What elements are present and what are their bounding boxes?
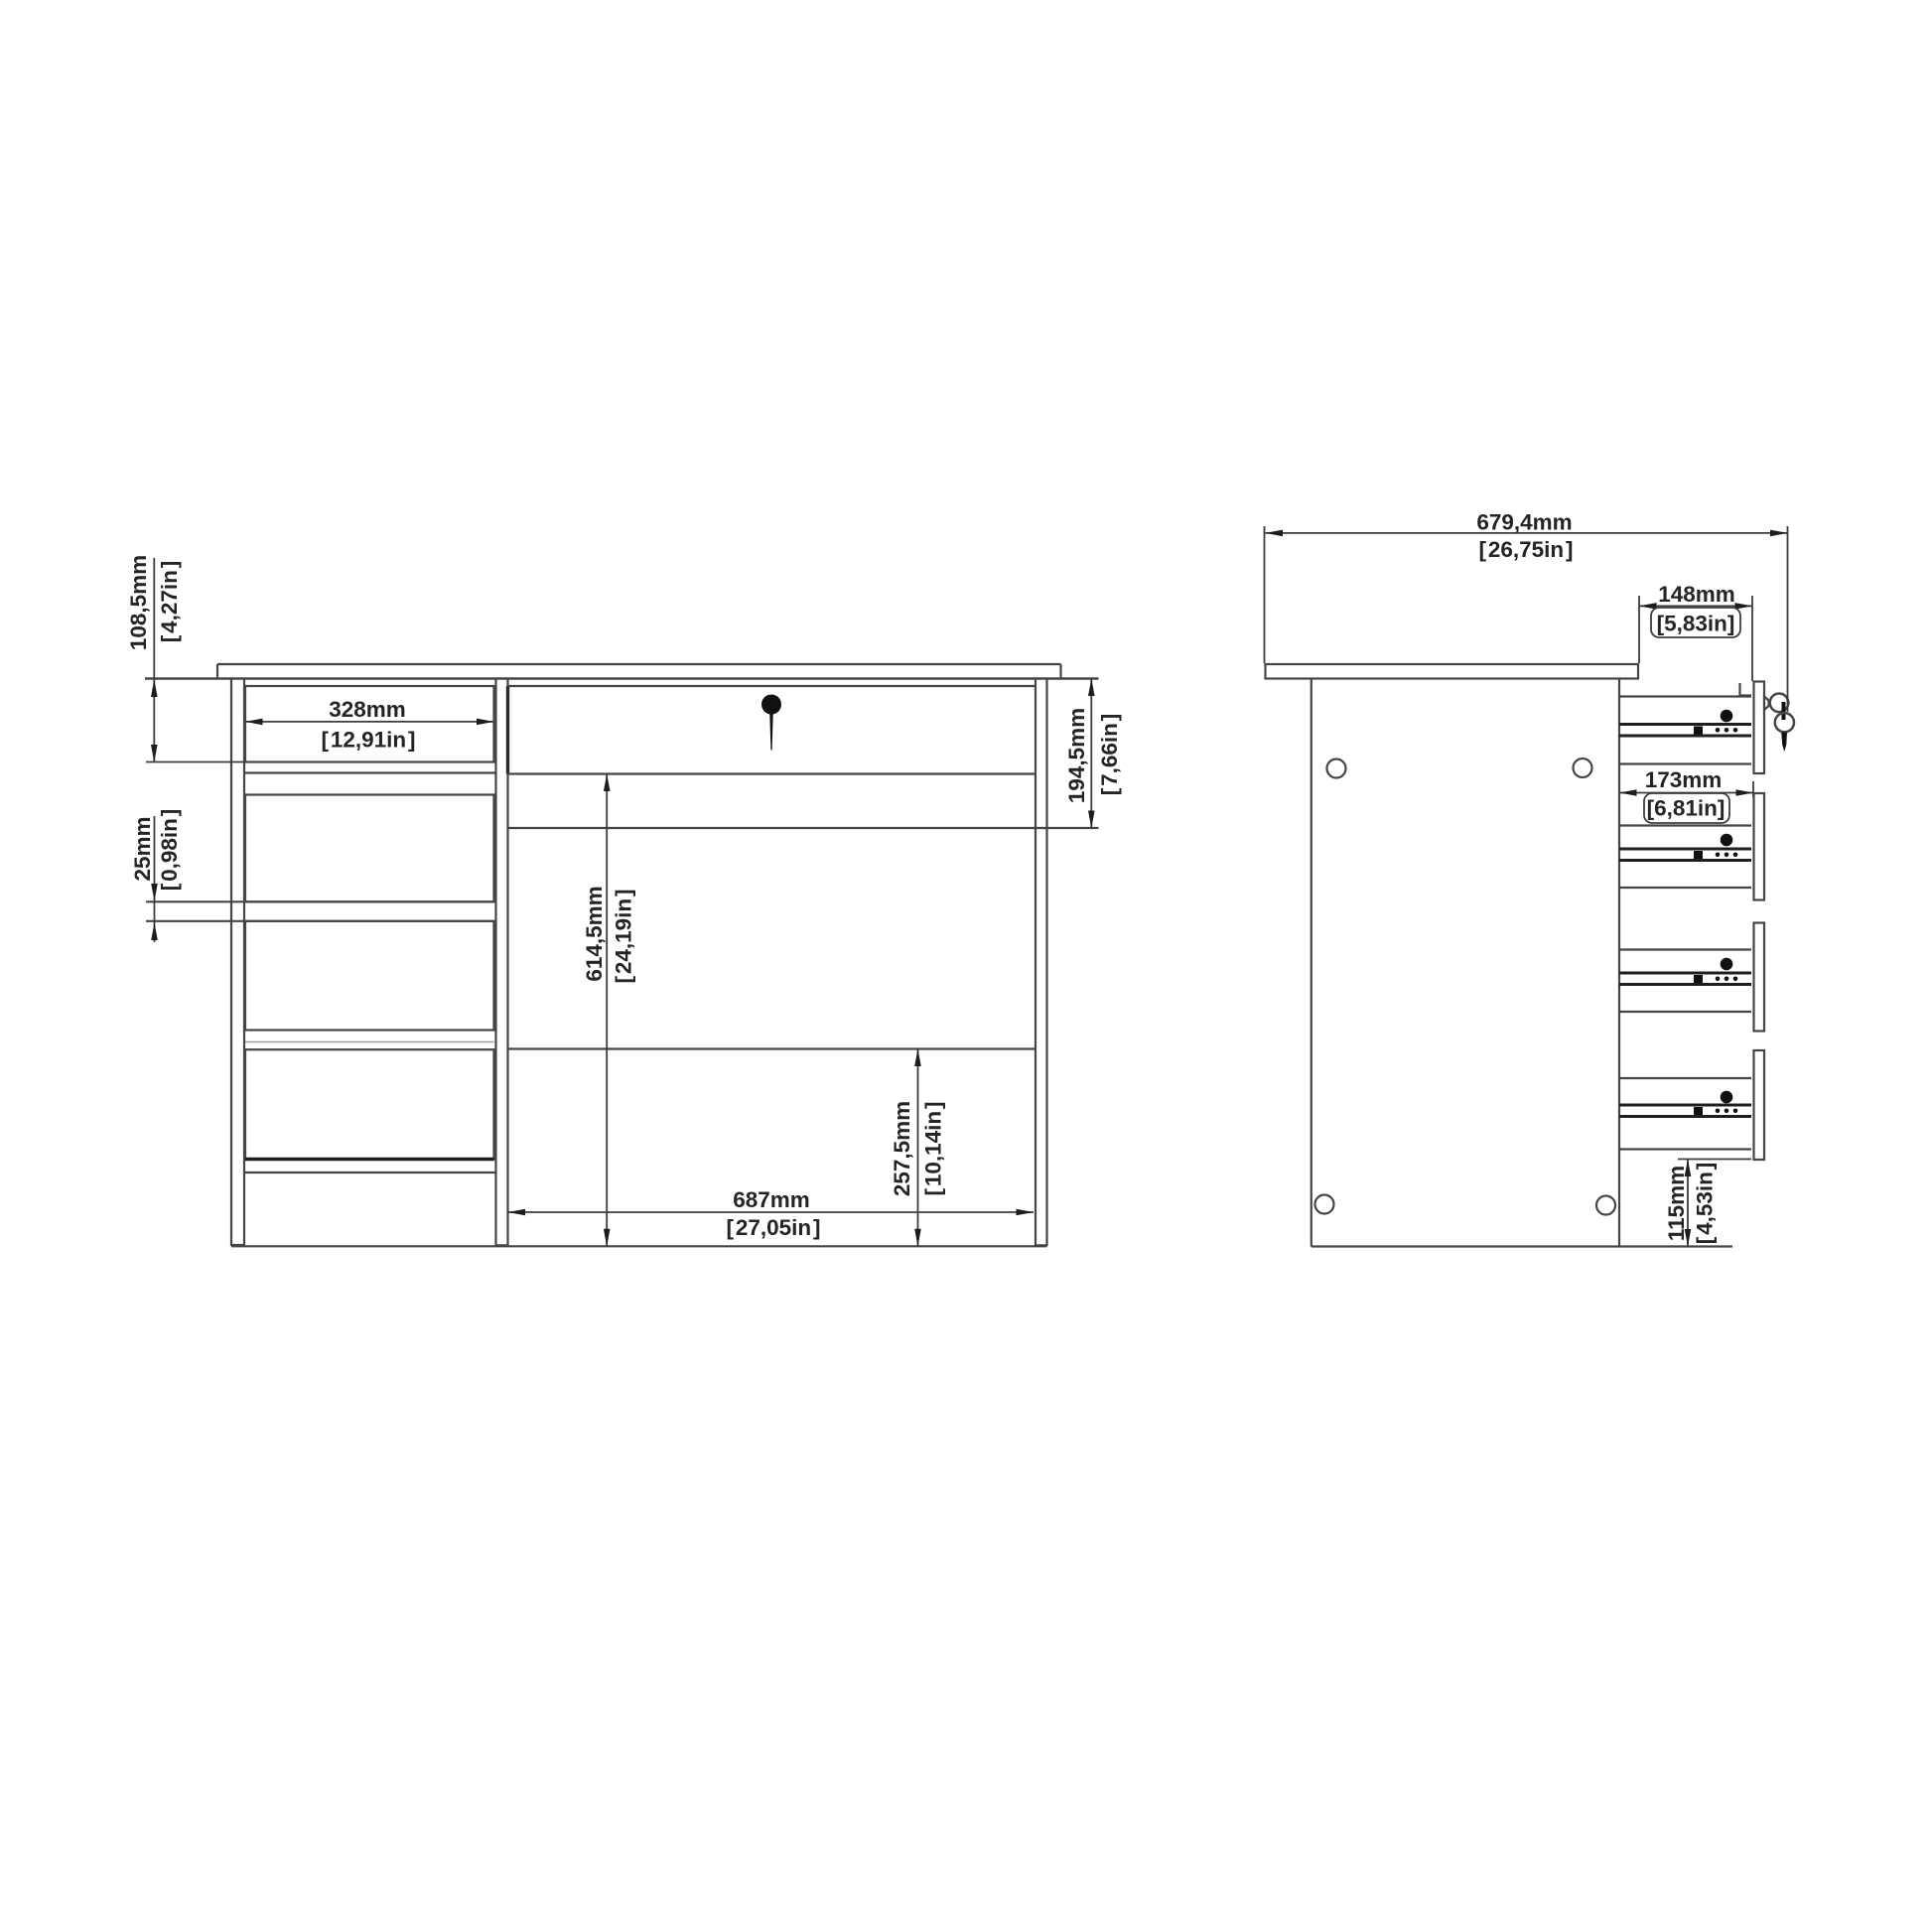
svg-text:[ 0,98in ]: [ 0,98in ] xyxy=(157,809,182,892)
svg-text:[5,83in]: [5,83in] xyxy=(1657,612,1735,636)
svg-text:257,5mm: 257,5mm xyxy=(890,1101,914,1196)
svg-text:[6,81in]: [6,81in] xyxy=(1647,796,1725,821)
svg-text:[ 27,05in ]: [ 27,05in ] xyxy=(726,1215,820,1240)
svg-text:687mm: 687mm xyxy=(733,1187,810,1212)
svg-text:25mm: 25mm xyxy=(130,816,155,881)
svg-text:108,5mm: 108,5mm xyxy=(126,555,151,650)
svg-text:[ 12,91in ]: [ 12,91in ] xyxy=(321,728,415,753)
svg-text:[ 24,19in ]: [ 24,19in ] xyxy=(612,889,636,983)
svg-text:[ 4,53in ]: [ 4,53in ] xyxy=(1693,1163,1718,1245)
svg-text:[ 7,66in ]: [ 7,66in ] xyxy=(1097,714,1122,796)
svg-text:115mm: 115mm xyxy=(1664,1166,1689,1241)
svg-text:[ 4,27in ]: [ 4,27in ] xyxy=(157,561,182,643)
svg-text:[ 26,75in ]: [ 26,75in ] xyxy=(1478,537,1573,562)
svg-text:679,4mm: 679,4mm xyxy=(1476,510,1572,535)
svg-text:173mm: 173mm xyxy=(1645,767,1723,792)
svg-text:328mm: 328mm xyxy=(329,697,406,722)
svg-text:[ 10,14in ]: [ 10,14in ] xyxy=(921,1101,946,1195)
svg-text:148mm: 148mm xyxy=(1658,582,1735,607)
svg-text:614,5mm: 614,5mm xyxy=(582,886,607,981)
svg-text:194,5mm: 194,5mm xyxy=(1064,708,1089,803)
